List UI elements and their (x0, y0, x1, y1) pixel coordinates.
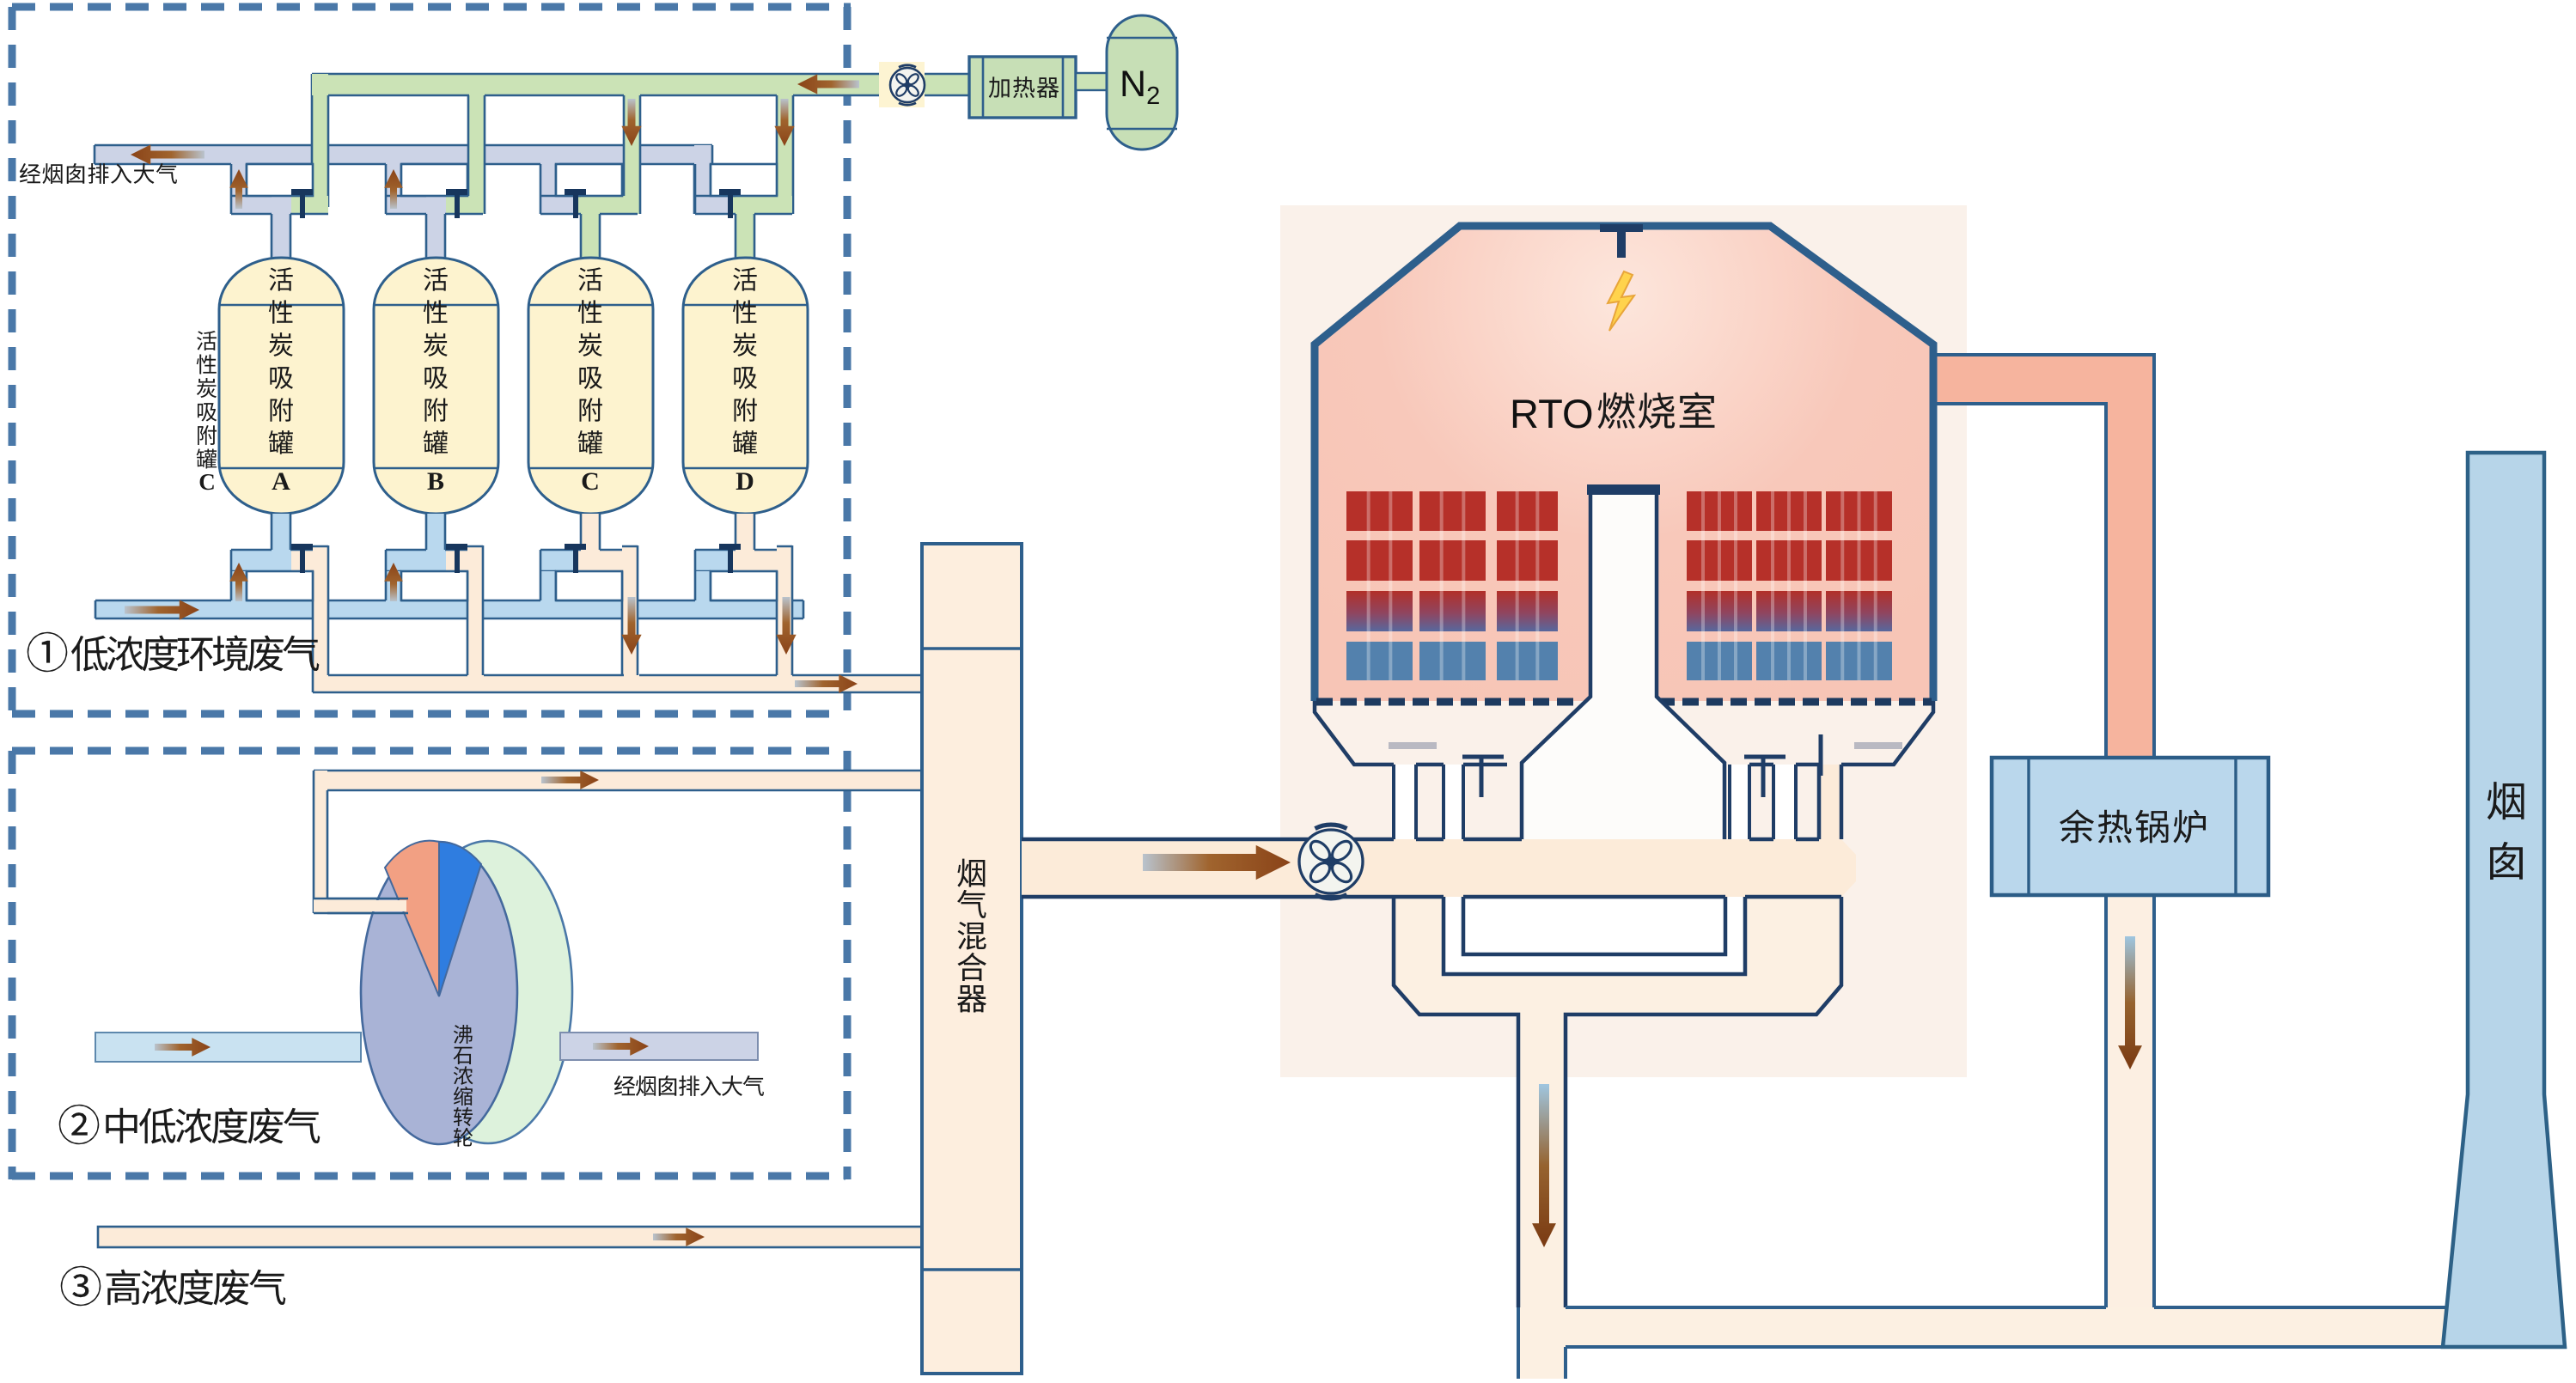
svg-text:B: B (427, 467, 444, 496)
svg-text:D: D (736, 467, 754, 496)
svg-text:A: A (272, 467, 290, 496)
svg-text:C: C (581, 467, 600, 496)
svg-text:C: C (198, 469, 216, 495)
svg-text:RTO: RTO (1510, 391, 1594, 436)
